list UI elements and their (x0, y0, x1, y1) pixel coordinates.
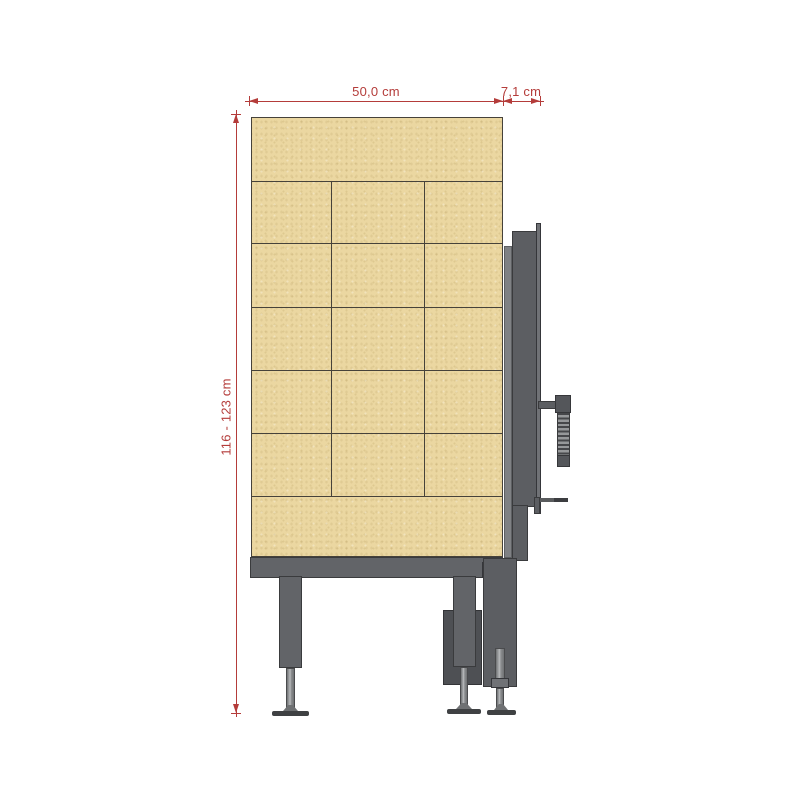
dimension-tick (231, 114, 241, 115)
tile-grid-line-horizontal (252, 181, 502, 182)
tile-grid-line-horizontal (252, 433, 502, 434)
tile-grid-line-vertical (424, 181, 425, 496)
base-beam (250, 557, 503, 578)
stove-body-lower (512, 505, 528, 561)
depth-dimension-label: 7,1 cm (495, 84, 547, 99)
height-dimension-line (236, 110, 237, 717)
tile-grid-line-horizontal (252, 307, 502, 308)
left-leg-column (279, 576, 302, 668)
arrowhead-icon (233, 114, 239, 123)
tile-grid-line-horizontal (252, 496, 502, 497)
dimension-tick (231, 713, 241, 714)
door-edge (536, 223, 541, 514)
left-foot-plate (272, 711, 309, 716)
middle-foot-plate (447, 709, 481, 714)
left-leg-stem (286, 668, 295, 710)
middle-leg-stem (460, 667, 468, 708)
middle-leg-column (453, 576, 476, 667)
height-dimension-label: 116 - 123 cm (219, 378, 234, 455)
dimension-tick (249, 96, 250, 106)
mounting-rail (504, 246, 512, 558)
width-dimension-label: 50,0 cm (330, 84, 422, 99)
technical-drawing: 50,0 cm 7,1 cm 116 - 123 cm (0, 0, 800, 800)
arrowhead-icon (249, 98, 258, 104)
handle-top-cap (555, 395, 571, 413)
tile-grid-line-horizontal (252, 370, 502, 371)
handle-bottom-cap (557, 455, 570, 467)
arrowhead-icon (233, 704, 239, 713)
tile-grid-line-horizontal (252, 243, 502, 244)
latch-pin-tip (554, 498, 568, 502)
handle-spring-coil (557, 413, 570, 455)
stove-body-side (512, 231, 537, 507)
rear-foot-plate (487, 710, 516, 715)
width-dimension-line (245, 101, 507, 102)
rear-foot-nut (491, 678, 509, 688)
tile-grid-line-vertical (331, 181, 332, 496)
latch-bracket (534, 497, 540, 514)
rear-foot-spindle (495, 648, 505, 680)
tile-panel (251, 117, 503, 557)
